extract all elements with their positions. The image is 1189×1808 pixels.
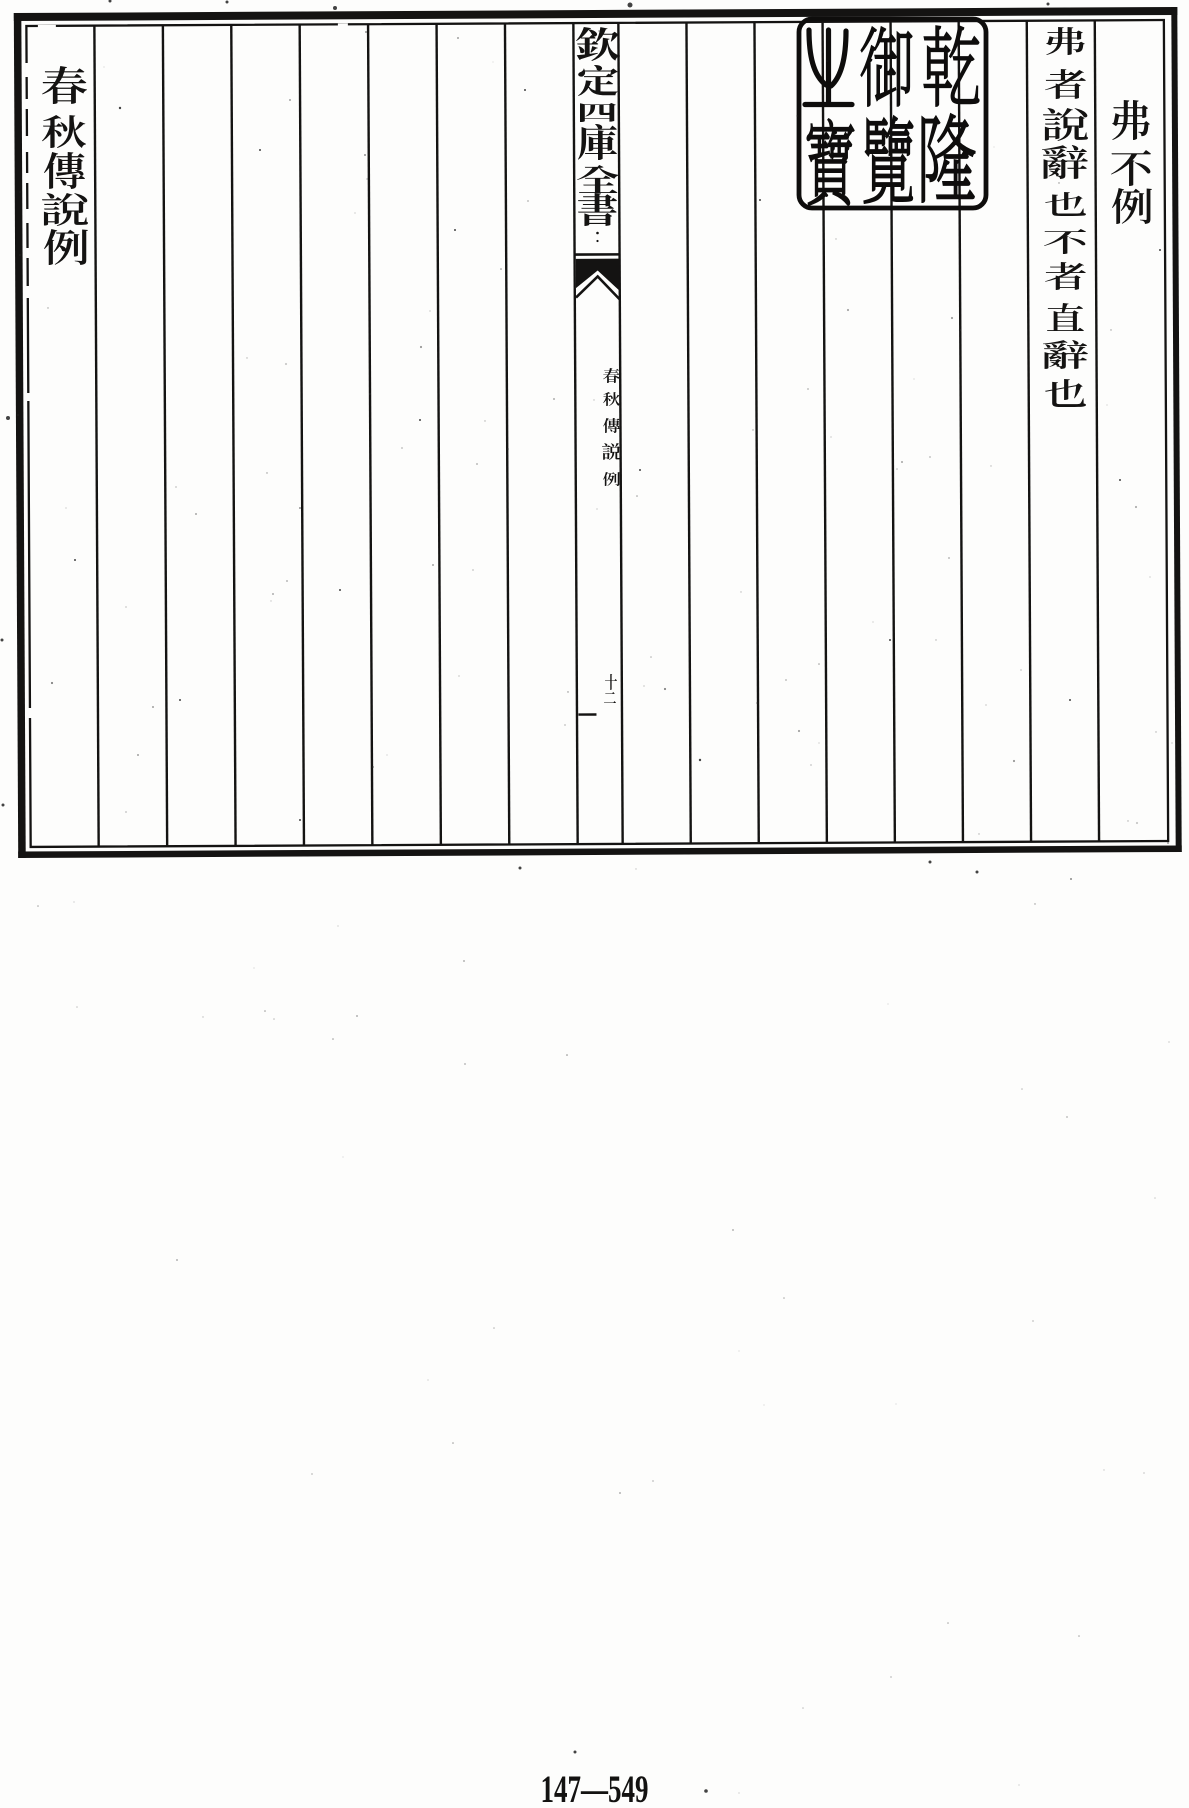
svg-text:147—549: 147—549 — [541, 1768, 649, 1808]
